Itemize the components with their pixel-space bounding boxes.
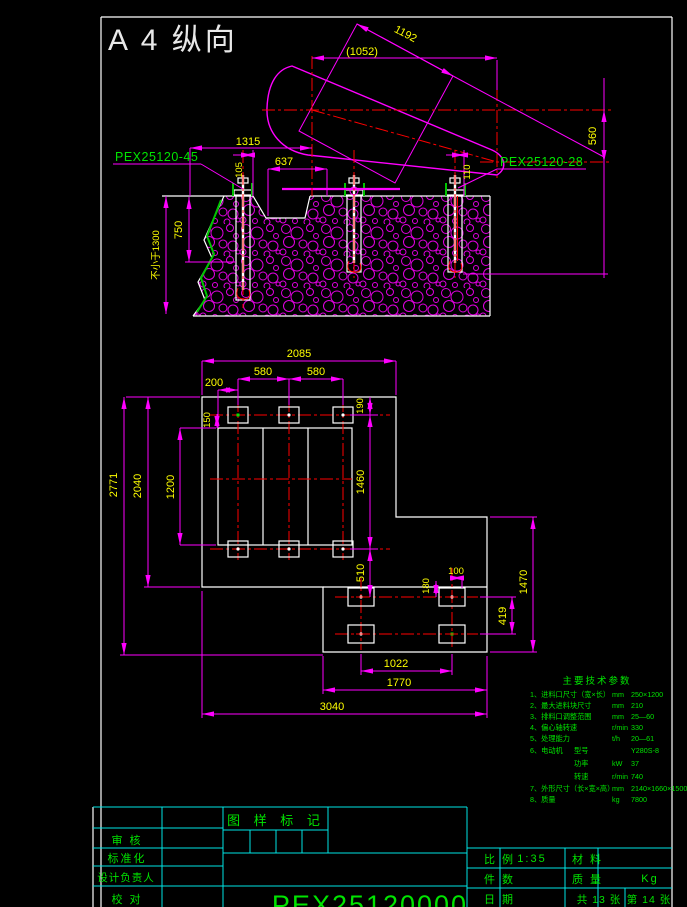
- scale-label: 比 例: [484, 852, 515, 866]
- dim-total-height: 2771: [108, 473, 120, 497]
- dim-top-edge-offset: 190: [355, 398, 366, 414]
- param-name: 3、排料口调整范围: [530, 712, 592, 721]
- sheets-total: 共 13 张: [577, 894, 622, 906]
- dim-foundation-depth: 不小于1300: [151, 230, 162, 280]
- dim-motor-bolt-b: 100: [448, 566, 464, 577]
- part-label-right: PEX25120-28: [500, 155, 583, 169]
- param-value: 20—61: [631, 734, 654, 743]
- drawing-number: PEX25120000: [272, 890, 468, 907]
- param-name: 1、进料口尺寸（宽×长）: [530, 690, 610, 699]
- param-value: 37: [631, 759, 639, 768]
- dim-top-width: (1052): [346, 46, 378, 58]
- dim-center-offset: 560: [587, 127, 599, 145]
- dim-plan-top-width: 2085: [287, 348, 311, 360]
- sheet-format-label: A 4 纵向: [108, 24, 238, 57]
- dim-bolt-left: 105: [234, 162, 245, 178]
- qty-label: 件 数: [484, 873, 515, 886]
- dim-bolt-right: 110: [462, 164, 473, 179]
- date-label: 日 期: [484, 893, 515, 906]
- dim-bolt-pitch-b: 580: [307, 366, 325, 378]
- param-name: 5、处理能力: [530, 734, 570, 743]
- dim-bolt-embed: 750: [173, 221, 185, 239]
- part-label-left: PEX25120-45: [115, 150, 198, 164]
- param-value: 250×1200: [631, 690, 663, 699]
- param-value: 2140×1660×1500: [631, 784, 687, 793]
- stamp-header: 图 样 标 记: [227, 813, 325, 828]
- param-name: 6、电动机: [530, 746, 564, 755]
- plan-centerlines: [210, 399, 478, 650]
- dim-left-width: 1315: [236, 136, 260, 148]
- param-unit: mm: [612, 784, 624, 793]
- param-name: 4、偏心轴转速: [530, 723, 577, 732]
- param-unit: r/min: [612, 723, 628, 732]
- param-value: 25—60: [631, 712, 654, 721]
- plan-outline: [202, 397, 487, 652]
- elevation-view: 1192 (1052) 560 1315 637 105 110: [113, 24, 612, 316]
- param-unit: kW: [612, 759, 623, 768]
- dim-bolt-margin: 200: [205, 377, 223, 389]
- param-unit: mm: [612, 712, 624, 721]
- tech-params-table: 主要技术参数 1、进料口尺寸（宽×长） mm 250×1200 2、最大进料块尺…: [530, 675, 687, 804]
- tech-params-rows: 1、进料口尺寸（宽×长） mm 250×1200 2、最大进料块尺寸 mm 21…: [530, 690, 687, 804]
- param-unit: mm: [612, 701, 624, 710]
- param-unit: kg: [612, 795, 620, 804]
- plan-dimensions: 2085 580 580 200 150 190 1460 510: [108, 348, 537, 718]
- plan-view: 2085 580 580 200 150 190 1460 510: [108, 348, 537, 718]
- param-value: 740: [631, 772, 643, 781]
- foundation-hatch: [193, 196, 490, 316]
- sheet-number: 第 14 张: [627, 893, 672, 906]
- cad-drawing: A 4 纵向: [0, 0, 687, 907]
- dim-pocket-width: 637: [275, 156, 293, 168]
- param-sub: 转速: [574, 772, 588, 781]
- material-label: 材 料: [572, 852, 603, 866]
- tech-params-title: 主要技术参数: [562, 675, 631, 687]
- param-unit: t/h: [612, 734, 620, 743]
- param-value: 7800: [631, 795, 647, 804]
- dim-motor-bolt-a: 180: [421, 578, 432, 594]
- dim-motor-row-spacing: 419: [497, 607, 509, 625]
- dim-lower-width: 1770: [387, 677, 411, 689]
- param-name: 8、质量: [530, 795, 556, 804]
- row-proofread-label: 校 对: [111, 892, 142, 906]
- row-design-lead-label: 设计负责人: [97, 871, 155, 884]
- dim-right-height: 1470: [518, 570, 530, 594]
- dim-opening-height: 1200: [165, 475, 177, 499]
- mass-label: 质 量: [572, 873, 603, 886]
- title-block: 图 样 标 记 审 核 标准化 设计负责人 校 对 比 例 1:35 材 料 件…: [93, 807, 672, 907]
- dim-bolt-pitch-a: 580: [254, 366, 272, 378]
- param-unit: mm: [612, 690, 624, 699]
- dim-bolt-row-spacing: 1460: [355, 470, 367, 494]
- param-name: 2、最大进料块尺寸: [530, 701, 592, 710]
- dim-left-height: 2040: [132, 474, 144, 498]
- param-sub: 型号: [574, 746, 588, 755]
- param-value: 210: [631, 701, 643, 710]
- dim-opening-offset: 150: [202, 412, 213, 428]
- param-unit: r/min: [612, 772, 628, 781]
- dim-rect-edge: 1192: [392, 24, 419, 46]
- mass-unit: Kg: [641, 873, 658, 885]
- param-sub: 功率: [574, 759, 588, 768]
- param-value: 330: [631, 723, 643, 732]
- crusher-body-outline: [267, 66, 504, 175]
- param-value: Y280S-8: [631, 746, 659, 755]
- row-standard-label: 标准化: [108, 851, 147, 865]
- dim-step-offset: 510: [355, 564, 367, 582]
- param-name: 7、外形尺寸（长×宽×高）: [530, 784, 614, 793]
- dim-motor-bolt-pitch: 1022: [384, 658, 408, 670]
- dim-total-width: 3040: [320, 701, 344, 713]
- row-reviewer-label: 审 核: [111, 833, 142, 847]
- cad-viewport: A 4 纵向: [0, 0, 687, 907]
- scale-value: 1:35: [517, 853, 546, 865]
